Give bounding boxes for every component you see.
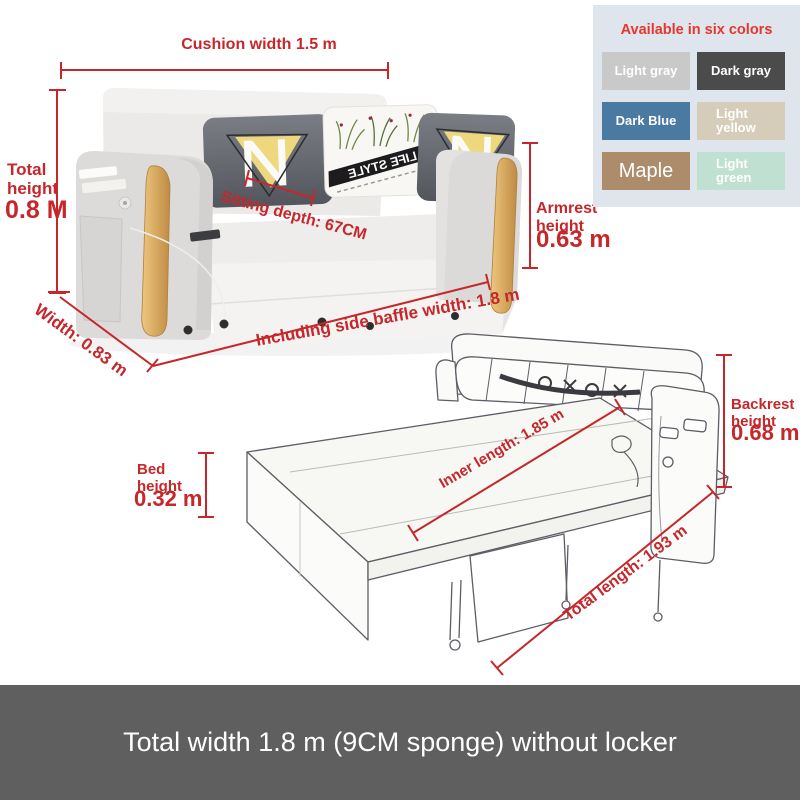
side-pocket-flap xyxy=(80,216,122,322)
wood-trim-left xyxy=(142,166,170,336)
swatch-grid: Light gray Dark gray Dark Blue Light yel… xyxy=(602,52,800,190)
color-swatch-light-gray: Light gray xyxy=(602,52,690,90)
swatch-label: Dark gray xyxy=(711,64,771,78)
color-swatch-dark-gray: Dark gray xyxy=(697,52,785,90)
colors-panel-title: Available in six colors xyxy=(593,22,800,38)
footer-banner: Total width 1.8 m (9CM sponge) without l… xyxy=(0,685,800,800)
cushion-width-line xyxy=(61,62,388,79)
color-swatch-light-yellow: Light yellow xyxy=(697,102,785,140)
bed-height-value: 0.32 m xyxy=(134,487,203,512)
total-height-value: 0.8 M xyxy=(5,196,68,224)
swatch-label: Maple xyxy=(619,160,673,182)
product-infographic: LIFE STYLE xyxy=(0,0,800,800)
colors-panel: Available in six colors Light gray Dark … xyxy=(593,5,800,207)
backrest-height-value: 0.68 m xyxy=(731,421,800,446)
color-swatch-light-green: Light green xyxy=(697,152,785,190)
cushion-width-label: Cushion width 1.5 m xyxy=(153,36,365,54)
color-swatch-maple: Maple xyxy=(602,152,690,190)
armrest-left xyxy=(76,151,225,340)
swatch-label: Dark Blue xyxy=(616,114,677,128)
color-swatch-dark-blue: Dark Blue xyxy=(602,102,690,140)
swatch-label: Light green xyxy=(716,157,766,186)
armrest-height-value: 0.63 m xyxy=(536,227,611,254)
swatch-label: Light yellow xyxy=(716,107,766,136)
swatch-label: Light gray xyxy=(615,64,678,78)
footer-text: Total width 1.8 m (9CM sponge) without l… xyxy=(123,727,677,758)
bed-sketch xyxy=(247,334,728,650)
total-height-label: Total height xyxy=(7,160,71,198)
